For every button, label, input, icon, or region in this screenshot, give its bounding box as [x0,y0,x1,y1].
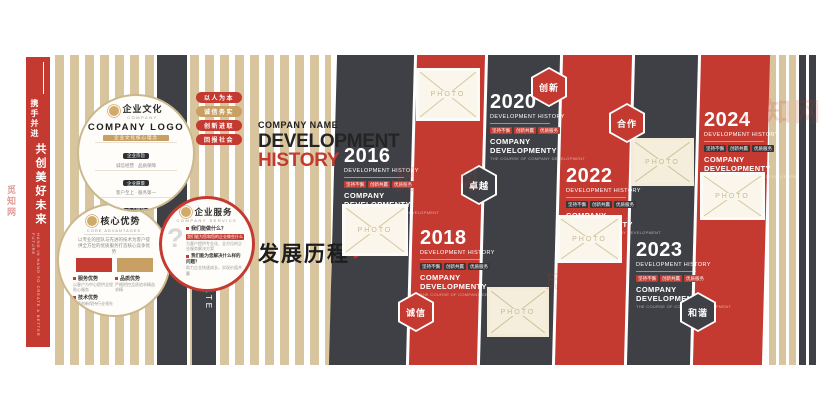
photo-label: PHOTO [643,159,682,166]
culture-row-text: 诚信经营 · 品质保障 [95,163,177,169]
service-title: 企业服务 [194,206,232,218]
value-pill-innovation: 创新进取 [196,120,242,131]
year-subtitle: DEVELOPMENT HISTORY [344,168,404,178]
advantages-intro: 以专业的团队与先进的技术为客户提供全方位的优质服务打造核心竞争优势 [77,237,151,255]
core-advantages-circle: 核心优势 CORE ADVANTAGES 以专业的团队与先进的技术为客户提供全方… [57,203,171,317]
service-question-1: 我们能做什么？ [186,225,244,232]
service-text-1: 为客户提供专业化、全方位的企业服务解决方案 [186,241,244,251]
year-tags: 坚持不懈 创新共赢 优质服务 [490,127,550,134]
year-subtitle: DEVELOPMENT HISTORY [636,262,696,272]
culture-row-text: 客户至上 · 服务第一 [95,190,177,196]
photo-placeholder: PHOTO [700,172,765,220]
year-tags: 坚持不懈 创新共赢 优质服务 [344,181,404,188]
tag: 坚持不懈 [566,201,588,208]
service-text-2: 助力企业快速成长，实现价值共赢 [186,265,244,275]
company-culture-circle: 企业文化 COMPANY COMPANY LOGO 企业文化核心理念 企业宗旨 … [77,94,195,212]
tag: 坚持不懈 [636,275,658,282]
year: 2023 [636,240,696,260]
company-line: COMPANY [704,155,764,164]
culture-row-label: 企业宗旨 [123,153,149,159]
advantage-label: 品质优势 [115,275,155,282]
tag: 坚持不懈 [704,145,726,152]
year: 2024 [704,110,764,130]
tag: 创新共赢 [660,275,682,282]
year-subtitle: DEVELOPMENT HISTORY [566,188,626,198]
culture-banner: 企业文化核心理念 [103,135,169,142]
tag: 优质服务 [614,201,636,208]
company-line: COMPANY [490,137,550,146]
advantages-title: 核心优势 [100,214,140,227]
culture-logo-title: 企业文化 [122,102,162,115]
culture-row-label: 企业愿景 [123,180,149,186]
culture-wall-design: CORPORATE CULTURE 携手并进 共创美好未来 HAND IN HA… [0,0,840,420]
tag: 优质服务 [468,263,490,270]
hexagon-badge-integrity: 诚信 [398,292,434,332]
value-pill-integrity: 诚信务实 [196,106,242,117]
company-name: COMPANY NAME [258,120,399,130]
year-subtitle: DEVELOPMENT HISTORY [704,132,764,142]
year-tags: 坚持不懈 创新共赢 优质服务 [420,263,480,270]
gold-dot-icon [87,216,97,226]
hexagon-badge-excellence: 卓越 [461,165,497,205]
tag: 优质服务 [538,127,560,134]
advantage-item: 服务优势 以客户为中心提供全程贴心服务 [73,275,113,292]
company-service-circle: ? 企业服务 COMPANY SERVICE 我们能做什么？ 我们能为您和您的企… [159,196,255,292]
company-logo-title: COMPANY LOGO [79,122,193,133]
photo-placeholder: PHOTO [416,68,480,121]
photo-placeholder: PHOTO [487,287,549,337]
color-swatches [59,258,169,272]
advantage-label: 技术优势 [73,294,113,301]
tag: 优质服务 [392,181,414,188]
tag: 优质服务 [684,275,706,282]
advantages-subtitle: CORE ADVANTAGES [84,228,144,235]
year: 2016 [344,146,404,166]
tag: 创新共赢 [444,263,466,270]
year-tags: 坚持不懈 创新共赢 优质服务 [566,201,626,208]
company-line: COMPANY [344,191,404,200]
year: 2022 [566,166,626,186]
culture-logo-sub: COMPANY [122,115,162,120]
tag: 优质服务 [752,145,774,152]
photo-label: PHOTO [356,227,395,234]
year-tags: 坚持不懈 创新共赢 优质服务 [636,275,696,282]
tag: 创新共赢 [368,181,390,188]
company-logo-icon [109,106,119,116]
tag: 坚持不懈 [344,181,366,188]
tag: 坚持不懈 [420,263,442,270]
question-mark-icon: ? [167,223,184,254]
year-block-2024: 2024 DEVELOPMENT HISTORY 坚持不懈 创新共赢 优质服务 … [704,110,764,179]
photo-placeholder: PHOTO [342,204,408,256]
advantage-label: 服务优势 [73,275,113,282]
company-line: DEVELOPMENTY [420,282,480,291]
culture-row: 企业愿景 客户至上 · 服务第一 [95,170,177,197]
advantage-items: 服务优势 以客户为中心提供全程贴心服务 品质优势 严格把控品质追求精益求精 技术… [73,275,155,311]
service-body: 我们能做什么？ 我们能为您和您的企业做些什么 为客户提供专业化、全方位的企业服务… [186,225,244,276]
photo-label: PHOTO [713,193,752,200]
photo-placeholder: PHOTO [631,138,694,186]
culture-row: 企业宗旨 诚信经营 · 品质保障 [95,142,177,169]
gold-dot-icon [181,207,191,217]
tag: 创新共赢 [514,127,536,134]
advantage-text: 严格把控品质追求精益求精 [115,282,155,292]
cn-title: 发展历程 [258,238,350,268]
hexagon-badge-harmony: 和谐 [680,292,716,332]
company-line: DEVELOPMENTY [490,146,550,155]
year-subtitle: DEVELOPMENT HISTORY [420,250,480,260]
tag: 创新共赢 [728,145,750,152]
service-question-2: 我们能为您解决什么样的问题？ [186,253,244,265]
gold-swatch [117,258,153,272]
hexagon-badge-innovation: 创新 [531,67,567,107]
photo-label: PHOTO [570,236,609,243]
red-swatch [76,258,112,272]
advantage-item: 品质优势 严格把控品质追求精益求精 [115,275,155,292]
hexagon-badge-cooperation: 合作 [609,103,645,143]
tag: 创新共赢 [590,201,612,208]
advantage-text: 以客户为中心提供全程贴心服务 [73,282,113,292]
value-pill-people-first: 以人为本 [196,92,242,103]
photo-label: PHOTO [499,309,538,316]
fine-print: THE COURSE OF COMPANY DEVELOPMENT [490,156,550,161]
culture-logo-text: 企业文化 COMPANY [122,102,162,120]
photo-placeholder: PHOTO [557,215,622,263]
year-block-2018: 2018 DEVELOPMENT HISTORY 坚持不懈 创新共赢 优质服务 … [420,228,480,297]
year: 2018 [420,228,480,248]
year-tags: 坚持不懈 创新共赢 优质服务 [704,145,764,152]
photo-label: PHOTO [429,91,468,98]
tag: 坚持不懈 [490,127,512,134]
service-header: 企业服务 [162,206,252,218]
year-subtitle: DEVELOPMENT HISTORY [490,114,550,124]
value-pill-give-back: 回报社会 [196,134,242,145]
service-banner: 我们能为您和您的企业做些什么 [186,234,244,240]
company-line: COMPANY [420,273,480,282]
